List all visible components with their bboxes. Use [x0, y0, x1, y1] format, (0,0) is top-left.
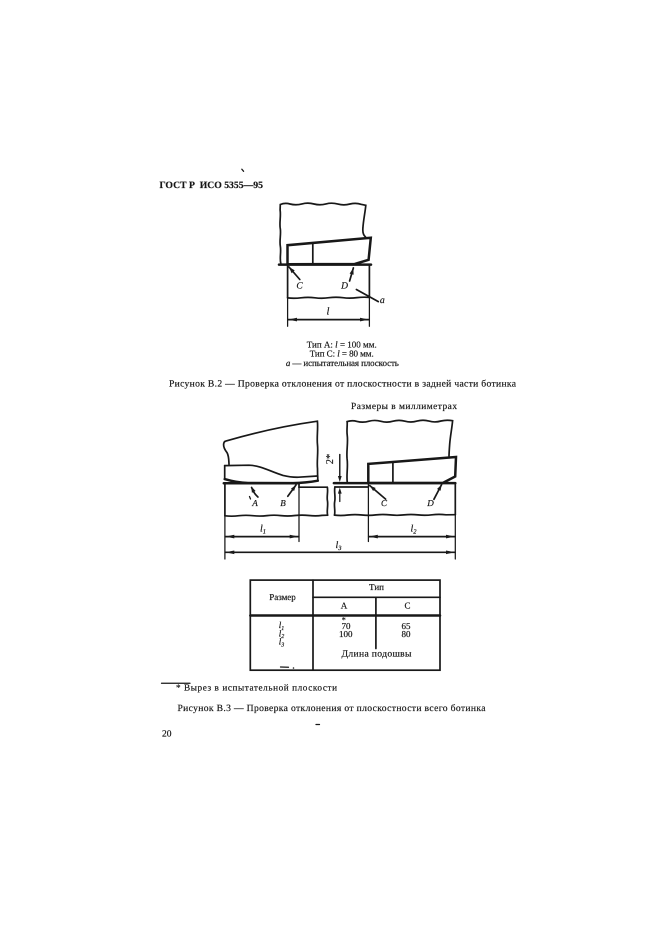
svg-text:Размеры в миллиметрах: Размеры в миллиметрах: [351, 402, 457, 412]
svg-text:ГОСТ Р ИСО 5355—95: ГОСТ Р ИСО 5355—95: [160, 180, 264, 191]
svg-text:D: D: [340, 282, 348, 292]
svg-text:l1: l1: [260, 524, 266, 536]
svg-text:В: В: [280, 498, 286, 508]
svg-text:*: *: [342, 616, 346, 625]
svg-text:а — испытательная плоскость: а — испытательная плоскость: [286, 358, 399, 368]
svg-text:а: а: [380, 295, 385, 306]
svg-text:Рисунок В.2 — Проверка отклоне: Рисунок В.2 — Проверка отклонения от пло…: [169, 379, 517, 390]
svg-text:С: С: [296, 282, 303, 292]
svg-text:20: 20: [162, 729, 172, 739]
svg-text:С: С: [404, 601, 410, 611]
svg-text:80: 80: [402, 629, 412, 639]
svg-text:* Вырез в испытательной плоск: * Вырез в испытательной плоскости: [176, 683, 337, 693]
svg-text:Рисунок В.3 — Проверка отклоне: Рисунок В.3 — Проверка отклонения от пло…: [178, 703, 487, 714]
svg-text:D: D: [426, 498, 434, 508]
svg-text:l: l: [327, 307, 330, 318]
svg-text:А: А: [341, 601, 348, 611]
svg-text:l2: l2: [410, 524, 417, 536]
svg-text:Длина подошвы: Длина подошвы: [342, 649, 413, 660]
svg-text:2*: 2*: [325, 454, 336, 465]
svg-text:Размер: Размер: [269, 592, 296, 602]
svg-text:l3: l3: [335, 540, 342, 552]
svg-text:100: 100: [339, 629, 353, 639]
svg-text:Тип: Тип: [369, 582, 384, 592]
svg-text:С: С: [381, 498, 388, 508]
svg-text:А: А: [251, 498, 258, 508]
